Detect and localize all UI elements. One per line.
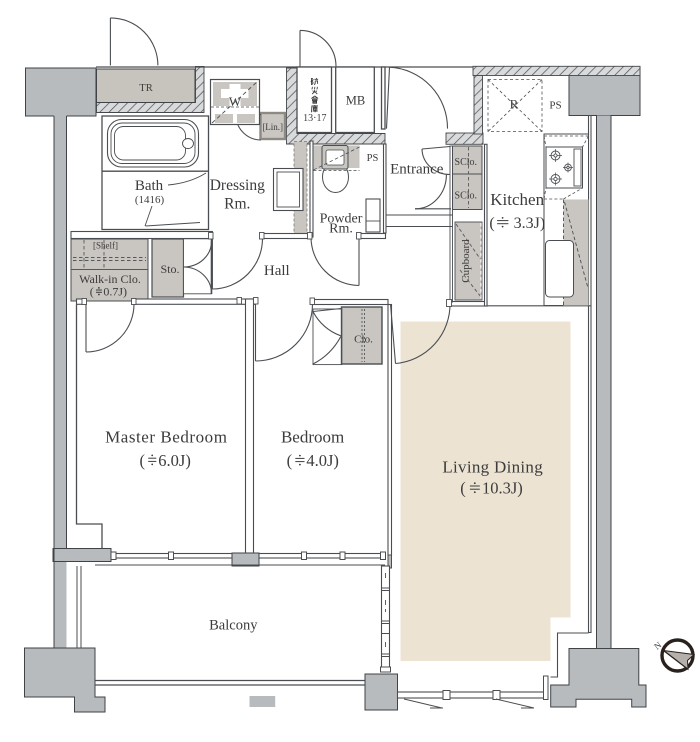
svg-text:Sto.: Sto. — [160, 262, 179, 276]
svg-text:3.3J): 3.3J) — [514, 215, 546, 232]
svg-text:[Shelf]: [Shelf] — [93, 241, 118, 251]
svg-text:10.3J): 10.3J) — [482, 479, 523, 498]
svg-text:Hall: Hall — [264, 263, 290, 279]
svg-text:Dressing: Dressing — [210, 177, 265, 194]
svg-text:Kitchen: Kitchen — [490, 190, 544, 209]
svg-text:Cupboard: Cupboard — [460, 239, 472, 283]
svg-text:(: ( — [287, 451, 293, 470]
svg-text:SClo.: SClo. — [455, 191, 478, 202]
svg-text:TR: TR — [139, 83, 152, 94]
svg-text:13·17: 13·17 — [303, 113, 326, 124]
svg-text:Master Bedroom: Master Bedroom — [105, 428, 227, 447]
svg-text:(1416): (1416) — [135, 194, 165, 206]
svg-text:[Lin.]: [Lin.] — [262, 122, 283, 132]
svg-text:Rm.: Rm. — [329, 222, 353, 237]
svg-text:Balcony: Balcony — [209, 618, 258, 634]
svg-text:0.7J): 0.7J) — [103, 285, 127, 299]
svg-text:6.0J): 6.0J) — [158, 451, 191, 470]
svg-text:PS: PS — [367, 153, 379, 164]
svg-text:(: ( — [460, 479, 466, 498]
svg-text:Rm.: Rm. — [224, 196, 250, 213]
svg-text:(: ( — [90, 285, 94, 299]
svg-text:PS: PS — [549, 100, 561, 112]
svg-text:R: R — [510, 97, 519, 112]
svg-text:W: W — [229, 94, 242, 109]
svg-text:(: ( — [489, 215, 494, 232]
svg-text:Entrance: Entrance — [390, 161, 444, 177]
svg-text:Living Dining: Living Dining — [442, 457, 543, 476]
svg-text:Clo.: Clo. — [354, 334, 373, 346]
svg-text:Bath: Bath — [135, 178, 164, 194]
svg-text:Bedroom: Bedroom — [281, 428, 344, 447]
svg-text:4.0J): 4.0J) — [306, 451, 339, 470]
svg-text:(: ( — [139, 451, 145, 470]
svg-text:MB: MB — [346, 94, 365, 108]
svg-text:SClo.: SClo. — [455, 157, 478, 168]
